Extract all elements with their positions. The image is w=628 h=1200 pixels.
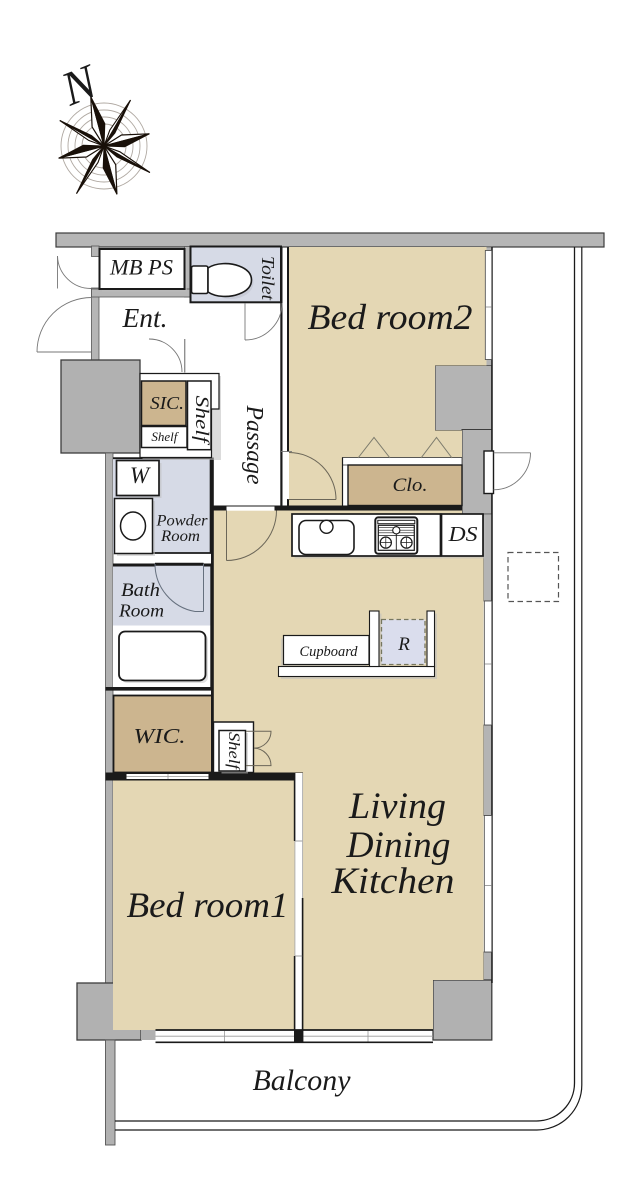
svg-text:Clo.: Clo. <box>393 475 428 496</box>
svg-text:Ent.: Ent. <box>121 303 167 333</box>
svg-text:DS: DS <box>447 522 478 546</box>
svg-text:Toilet: Toilet <box>258 256 278 301</box>
svg-text:MB PS: MB PS <box>109 255 173 280</box>
svg-text:WIC.: WIC. <box>134 724 186 748</box>
svg-text:Bed room2: Bed room2 <box>308 297 473 337</box>
svg-text:Dining: Dining <box>345 825 450 866</box>
svg-text:Passage: Passage <box>241 405 267 485</box>
svg-text:Balcony: Balcony <box>253 1064 352 1097</box>
svg-text:Shelf: Shelf <box>151 429 179 444</box>
svg-text:SIC.: SIC. <box>150 393 184 413</box>
svg-text:Kitchen: Kitchen <box>330 861 454 902</box>
svg-text:R: R <box>397 634 410 655</box>
svg-text:Room: Room <box>160 528 200 545</box>
svg-text:Room: Room <box>118 601 164 621</box>
svg-text:Bath: Bath <box>121 580 160 601</box>
svg-text:Living: Living <box>348 786 446 827</box>
svg-text:Powder: Powder <box>155 513 208 530</box>
svg-text:W: W <box>130 463 151 488</box>
svg-text:Shelf: Shelf <box>191 396 212 446</box>
svg-text:Bed room1: Bed room1 <box>127 885 289 925</box>
svg-text:Shelf: Shelf <box>225 732 242 772</box>
svg-text:Cupboard: Cupboard <box>300 644 358 660</box>
